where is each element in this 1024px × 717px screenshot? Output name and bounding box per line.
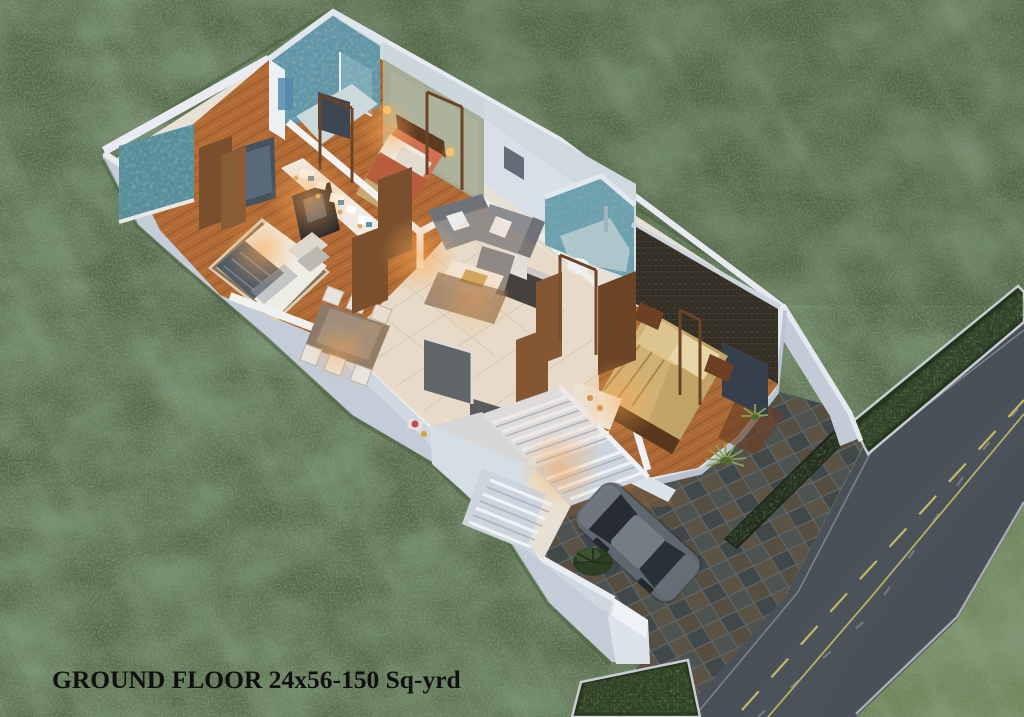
- svg-text:GROUND FLOOR 24x56-150 Sq-yrd: GROUND FLOOR 24x56-150 Sq-yrd: [52, 665, 461, 694]
